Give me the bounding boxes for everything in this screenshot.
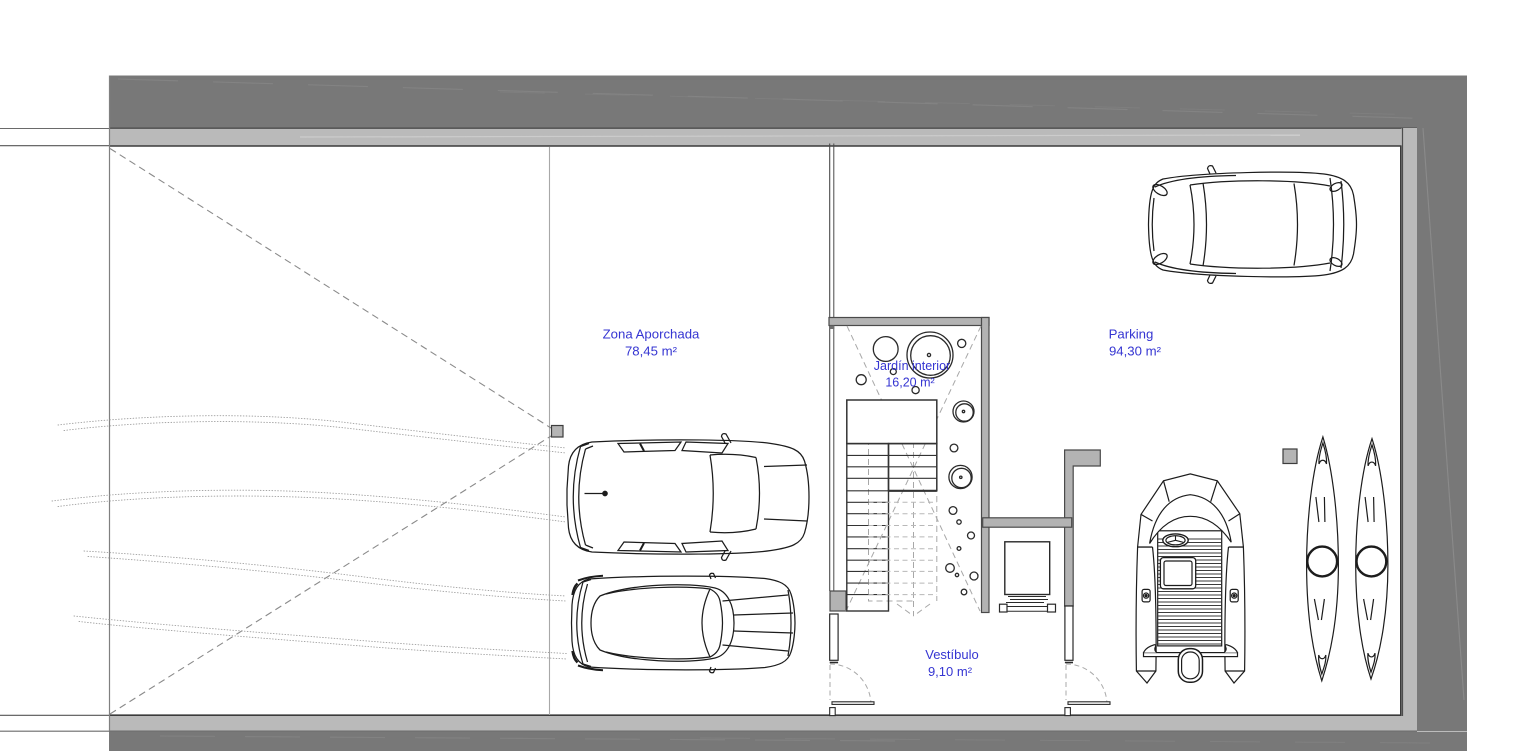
svg-text:94,30 m²: 94,30 m² (1109, 344, 1162, 359)
svg-text:Zona Aporchada: Zona Aporchada (603, 327, 700, 342)
svg-text:9,10 m²: 9,10 m² (928, 664, 973, 679)
svg-text:78,45 m²: 78,45 m² (625, 344, 678, 359)
svg-text:Vestíbulo: Vestíbulo (925, 647, 979, 662)
svg-text:16,20 m²: 16,20 m² (885, 376, 934, 390)
svg-text:Parking: Parking (1109, 327, 1154, 342)
svg-text:Jardín interior: Jardín interior (874, 359, 950, 373)
